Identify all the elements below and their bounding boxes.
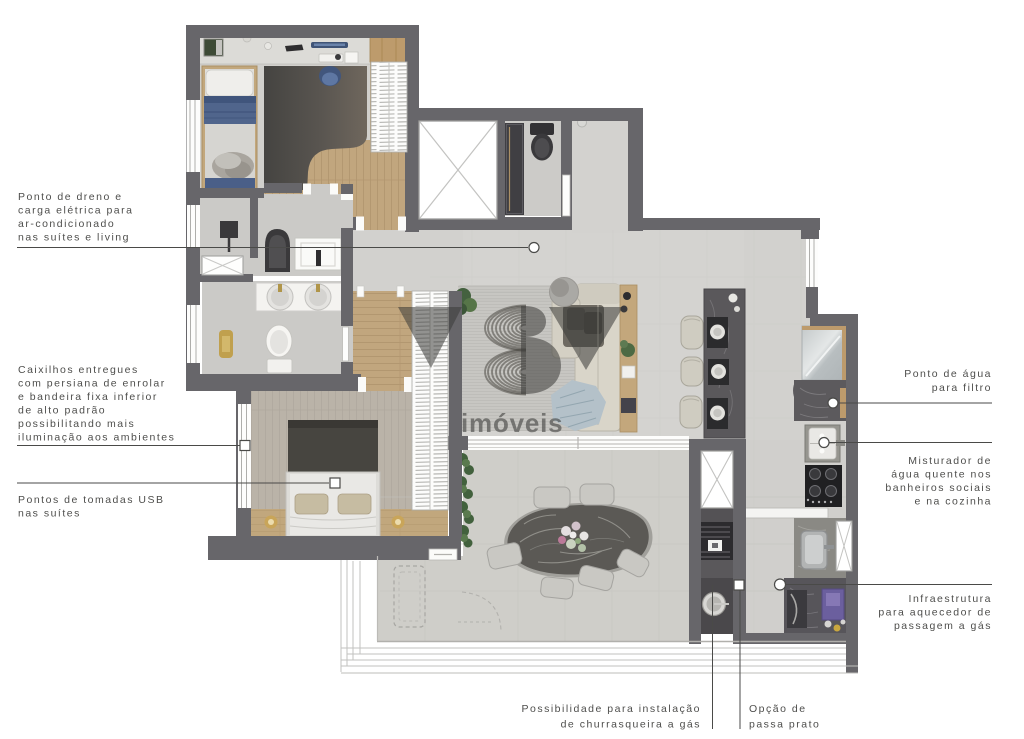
svg-text:banheiros sociais: banheiros sociais bbox=[885, 482, 992, 494]
svg-text:com persiana de enrolar: com persiana de enrolar bbox=[18, 378, 166, 390]
svg-text:passagem a gás: passagem a gás bbox=[894, 620, 992, 632]
svg-text:passa prato: passa prato bbox=[749, 719, 820, 731]
svg-text:ar-condicionado: ar-condicionado bbox=[18, 218, 115, 230]
svg-text:Misturador de: Misturador de bbox=[908, 455, 992, 467]
svg-text:carga elétrica para: carga elétrica para bbox=[18, 205, 133, 217]
svg-text:Pontos de tomadas USB: Pontos de tomadas USB bbox=[18, 494, 164, 506]
svg-text:Infraestrutura: Infraestrutura bbox=[909, 593, 992, 605]
svg-text:Possibilidade para instalação: Possibilidade para instalação bbox=[521, 703, 701, 715]
svg-text:imóveis: imóveis bbox=[461, 408, 563, 438]
svg-text:iluminação aos ambientes: iluminação aos ambientes bbox=[18, 432, 175, 444]
svg-text:e na cozinha: e na cozinha bbox=[914, 496, 992, 508]
svg-text:de alto padrão: de alto padrão bbox=[18, 405, 106, 417]
svg-text:para aquecedor de: para aquecedor de bbox=[878, 607, 992, 619]
svg-text:possibilitando mais: possibilitando mais bbox=[18, 418, 135, 430]
svg-text:água quente nos: água quente nos bbox=[891, 469, 992, 481]
svg-text:Caixilhos entregues: Caixilhos entregues bbox=[18, 364, 139, 376]
svg-text:Opção de: Opção de bbox=[749, 703, 807, 715]
svg-text:Ponto de dreno e: Ponto de dreno e bbox=[18, 191, 123, 203]
svg-text:para filtro: para filtro bbox=[932, 382, 992, 394]
svg-text:e bandeira fixa inferior: e bandeira fixa inferior bbox=[18, 391, 158, 403]
svg-text:de churrasqueira a gás: de churrasqueira a gás bbox=[561, 719, 701, 731]
svg-text:Ponto de água: Ponto de água bbox=[904, 368, 992, 380]
svg-text:nas suítes e living: nas suítes e living bbox=[18, 232, 130, 244]
svg-text:nas suítes: nas suítes bbox=[18, 508, 81, 520]
